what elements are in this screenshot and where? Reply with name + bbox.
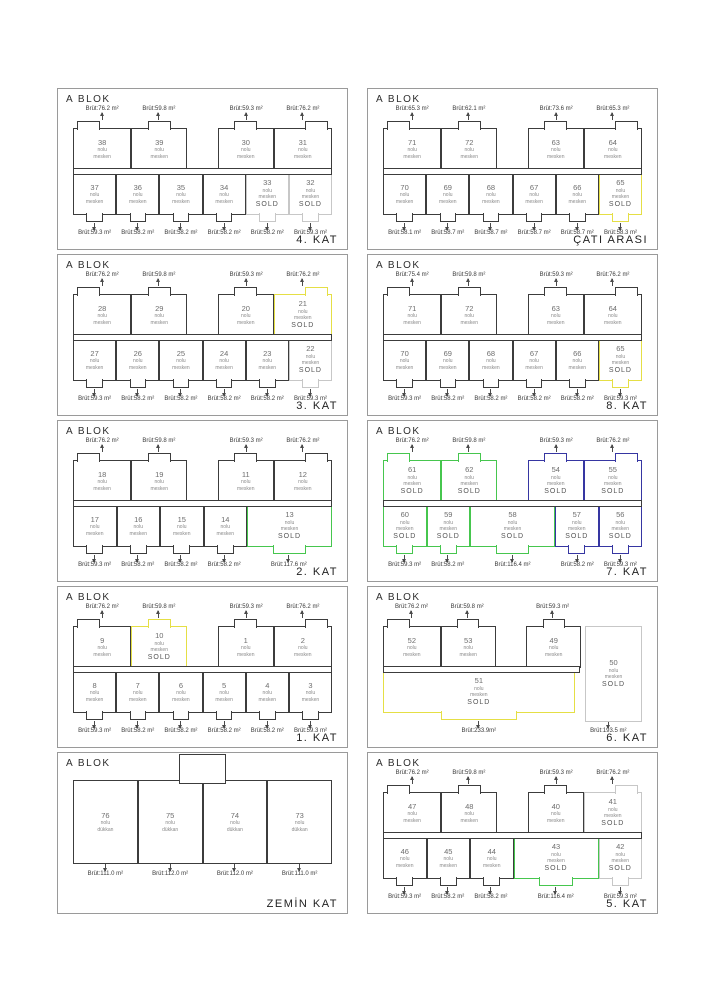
unit-roof-step bbox=[387, 121, 411, 130]
area-label: Brüt:59.8 m² bbox=[131, 604, 187, 618]
sold-badge: SOLD bbox=[609, 367, 632, 376]
area-label-row: Brüt:59.3 m²Brüt:58.2 m²Brüt:58.2 m²Brüt… bbox=[73, 721, 332, 735]
area-label: Brüt:76.2 m² bbox=[274, 438, 332, 452]
area-label: Brüt:59.8 m² bbox=[440, 604, 494, 618]
unit-floor-step bbox=[259, 213, 275, 222]
unit-kind-label: dükkan bbox=[292, 827, 308, 833]
arrow-up-icon bbox=[158, 445, 159, 452]
unit-52: 52nolumesken bbox=[383, 626, 441, 668]
area-value: Brüt:58.2 m² bbox=[164, 230, 197, 237]
sold-badge: SOLD bbox=[609, 201, 632, 210]
area-value: Brüt:59.3 m² bbox=[78, 728, 111, 735]
sold-badge: SOLD bbox=[401, 488, 424, 497]
unit-number: 6 bbox=[179, 681, 183, 690]
unit-kind-label: mesken bbox=[460, 320, 478, 326]
floor-name: 6. KAT bbox=[606, 732, 648, 744]
bottom-units-row: 70nolumesken69nolumesken68nolumesken67no… bbox=[383, 339, 642, 389]
unit-17: 17nolumesken bbox=[73, 505, 117, 547]
unit-roof-step bbox=[387, 287, 411, 296]
arrow-up-icon bbox=[302, 113, 303, 120]
unit-30: 30nolumesken bbox=[218, 128, 274, 170]
unit-roof-step bbox=[77, 121, 101, 130]
unit-number: 49 bbox=[550, 636, 558, 645]
unit-number: 68 bbox=[487, 349, 495, 358]
arrow-down-icon bbox=[447, 555, 448, 562]
unit-floor-step bbox=[216, 379, 232, 388]
arrow-down-icon bbox=[478, 721, 479, 728]
unit-number: 61 bbox=[408, 465, 416, 474]
unit-31: 31nolumesken bbox=[274, 128, 332, 170]
unit-floor-step bbox=[526, 379, 542, 388]
corridor bbox=[73, 666, 332, 673]
area-value: Brüt:58.2 m² bbox=[474, 894, 507, 901]
area-label: Brüt:75.4 m² bbox=[383, 272, 441, 286]
arrow-up-icon bbox=[468, 113, 469, 120]
area-label: Brüt:76.2 m² bbox=[73, 604, 131, 618]
area-value: Brüt:233.9m² bbox=[461, 728, 496, 735]
area-label: Brüt:59.3 m² bbox=[73, 389, 116, 403]
unit-46: 46nolumesken bbox=[383, 837, 427, 879]
arrow-down-icon bbox=[137, 555, 138, 562]
unit-kind-label: mesken bbox=[294, 486, 312, 492]
arrow-up-icon bbox=[612, 113, 613, 120]
unit-number: 20 bbox=[242, 304, 250, 313]
unit-number: 33 bbox=[263, 178, 271, 187]
unit-kind-label: mesken bbox=[86, 531, 104, 537]
area-label: Brüt:59.3 m² bbox=[528, 770, 584, 784]
unit-floor-step bbox=[483, 877, 500, 886]
arrow-down-icon bbox=[137, 389, 138, 396]
unit-16: 16nolumesken bbox=[117, 505, 161, 547]
area-label: Brüt:59.3 m² bbox=[525, 604, 579, 618]
area-value: Brüt:116.4 m² bbox=[538, 894, 574, 901]
unit-roof-step bbox=[387, 619, 410, 628]
unit-kind-label: mesken bbox=[482, 365, 500, 371]
floor-name: 1. KAT bbox=[296, 732, 338, 744]
unit-floor-step bbox=[569, 213, 585, 222]
area-value: Brüt:58.2 m² bbox=[164, 728, 197, 735]
unit-72: 72nolumesken bbox=[441, 294, 497, 336]
unit-roof-step bbox=[234, 619, 257, 628]
unit-floor-step bbox=[396, 877, 413, 886]
bottom-units-row: 70nolumesken69nolumesken68nolumesken67no… bbox=[383, 173, 642, 223]
arrow-down-icon bbox=[94, 223, 95, 230]
unit-26: 26nolumesken bbox=[116, 339, 159, 381]
plan-gap bbox=[187, 128, 218, 170]
unit-floor-step bbox=[396, 213, 412, 222]
panels-grid: A BLOKBrüt:76.2 m²Brüt:59.8 m²Brüt:59.3 … bbox=[57, 88, 658, 914]
arrow-up-icon bbox=[412, 279, 413, 286]
unit-number: 64 bbox=[609, 138, 617, 147]
unit-number: 31 bbox=[299, 138, 307, 147]
unit-kind-label: mesken bbox=[294, 652, 312, 658]
corridor bbox=[73, 500, 332, 507]
unit-65: 65nolumeskenSOLD bbox=[599, 173, 642, 215]
floor-plan: Brüt:76.2 m²Brüt:59.8 m²Brüt:59.3 m²Brüt… bbox=[73, 604, 332, 735]
arrow-up-icon bbox=[556, 777, 557, 784]
unit-floor-step bbox=[526, 213, 542, 222]
area-label: Brüt:58.2 m² bbox=[246, 223, 289, 237]
unit-63: 63nolumesken bbox=[528, 294, 584, 336]
unit-roof-step bbox=[234, 287, 257, 296]
unit-floor-step bbox=[496, 545, 529, 554]
unit-roof-step bbox=[458, 453, 481, 462]
unit-kind-label: mesken bbox=[604, 320, 622, 326]
unit-kind-label: mesken bbox=[129, 531, 147, 537]
sold-badge: SOLD bbox=[565, 533, 588, 542]
unit-number: 15 bbox=[178, 515, 186, 524]
unit-21: 21nolumeskenSOLD bbox=[274, 294, 332, 336]
unit-roof-step bbox=[615, 785, 639, 794]
unit-floor-step bbox=[302, 213, 318, 222]
unit-73: 73noludükkan bbox=[267, 780, 332, 864]
arrow-down-icon bbox=[105, 864, 106, 871]
shops-row: 76noludükkan75noludükkan74noludükkan73no… bbox=[73, 780, 332, 864]
unit-kind-label: mesken bbox=[569, 365, 587, 371]
unit-76: 76noludükkan bbox=[73, 780, 138, 864]
area-label: Brüt:59.3 m² bbox=[383, 555, 426, 569]
arrow-down-icon bbox=[310, 721, 311, 728]
area-label: Brüt:59.8 m² bbox=[131, 272, 187, 286]
area-value: Brüt:58.2 m² bbox=[208, 562, 241, 569]
unit-kind-label: mesken bbox=[86, 199, 104, 205]
area-label: Brüt:59.3 m² bbox=[383, 389, 426, 403]
area-value: Brüt:59.3 m² bbox=[78, 396, 111, 403]
arrow-up-icon bbox=[158, 611, 159, 618]
arrow-down-icon bbox=[447, 223, 448, 230]
corridor bbox=[73, 168, 332, 175]
area-value: Brüt:111.0 m² bbox=[282, 871, 317, 878]
unit-kind-label: mesken bbox=[216, 531, 234, 537]
arrow-down-icon bbox=[224, 555, 225, 562]
unit-kind-label: mesken bbox=[459, 652, 477, 658]
unit-roof-step bbox=[457, 619, 479, 628]
arrow-down-icon bbox=[555, 887, 556, 894]
unit-number: 3 bbox=[308, 681, 312, 690]
unit-kind-label: dükkan bbox=[162, 827, 178, 833]
area-value: Brüt:58.2 m² bbox=[431, 396, 464, 403]
arrow-down-icon bbox=[620, 887, 621, 894]
area-value: Brüt:58.1 m² bbox=[388, 230, 421, 237]
area-value: Brüt:58.2 m² bbox=[208, 728, 241, 735]
floor-plan: Brüt:65.3 m²Brüt:62.1 m²Brüt:73.6 m²Brüt… bbox=[383, 106, 642, 237]
unit-number: 23 bbox=[263, 349, 271, 358]
unit-32: 32nolumeskenSOLD bbox=[289, 173, 332, 215]
floor-name: 2. KAT bbox=[296, 566, 338, 578]
unit-2: 2nolumesken bbox=[274, 626, 332, 668]
top-units-row: 38nolumesken39nolumesken30nolumesken31no… bbox=[73, 120, 332, 170]
area-label: Brüt:58.2 m² bbox=[203, 389, 246, 403]
top-units-row: 28nolumesken29nolumesken20nolumesken21no… bbox=[73, 286, 332, 336]
arrow-up-icon bbox=[158, 113, 159, 120]
area-value: Brüt:59.3 m² bbox=[78, 230, 111, 237]
unit-36: 36nolumesken bbox=[116, 173, 159, 215]
area-label-row: Brüt:59.3 m²Brüt:58.2 m²Brüt:58.2 m²Brüt… bbox=[73, 223, 332, 237]
unit-number: 64 bbox=[609, 304, 617, 313]
unit-22: 22nolumeskenSOLD bbox=[289, 339, 332, 381]
arrow-down-icon bbox=[180, 223, 181, 230]
floor-name: 3. KAT bbox=[296, 400, 338, 412]
arrow-down-icon bbox=[490, 389, 491, 396]
area-label-row: Brüt:59.3 m²Brüt:58.2 m²Brüt:58.2 m²Brüt… bbox=[73, 555, 332, 569]
plan-gap bbox=[497, 128, 528, 170]
unit-roof-step bbox=[77, 287, 101, 296]
unit-roof-step bbox=[234, 453, 257, 462]
bottom-units-row: 60nolumeskenSOLD59nolumeskenSOLD58nolume… bbox=[383, 505, 642, 555]
unit-10: 10nolumeskenSOLD bbox=[131, 626, 187, 668]
floor-panel-2-kat: A BLOKBrüt:76.2 m²Brüt:59.8 m²Brüt:59.3 … bbox=[57, 420, 348, 582]
area-label: Brüt:76.2 m² bbox=[584, 770, 642, 784]
unit-8: 8nolumesken bbox=[73, 671, 116, 713]
corridor bbox=[383, 832, 642, 839]
unit-number: 51 bbox=[475, 676, 483, 685]
unit-number: 24 bbox=[220, 349, 228, 358]
unit-43: 43nolumeskenSOLD bbox=[514, 837, 599, 879]
arrow-up-icon bbox=[612, 279, 613, 286]
unit-roof-step bbox=[148, 121, 171, 130]
area-label: Brüt:76.2 m² bbox=[584, 438, 642, 452]
unit-floor-step bbox=[440, 545, 457, 554]
area-value: Brüt:58.2 m² bbox=[164, 562, 197, 569]
unit-kind-label: mesken bbox=[403, 818, 421, 824]
unit-72: 72nolumesken bbox=[441, 128, 497, 170]
unit-number: 2 bbox=[301, 636, 305, 645]
unit-floor-step bbox=[217, 545, 234, 554]
label-gap bbox=[494, 604, 525, 618]
building-bump bbox=[179, 754, 226, 784]
arrow-up-icon bbox=[246, 611, 247, 618]
unit-number: 5 bbox=[222, 681, 226, 690]
unit-kind-label: mesken bbox=[612, 194, 630, 200]
area-label: Brüt:59.3 m² bbox=[73, 223, 116, 237]
unit-number: 1 bbox=[244, 636, 248, 645]
unit-kind-label: mesken bbox=[604, 481, 622, 487]
unit-kind-label: mesken bbox=[403, 481, 421, 487]
unit-kind-label: mesken bbox=[172, 199, 190, 205]
unit-28: 28nolumesken bbox=[73, 294, 131, 336]
unit-67: 67nolumesken bbox=[513, 173, 556, 215]
unit-9: 9nolumesken bbox=[73, 626, 131, 668]
arrow-down-icon bbox=[620, 223, 621, 230]
unit-66: 66nolumesken bbox=[556, 173, 599, 215]
unit-floor-step bbox=[612, 379, 628, 388]
unit-roof-step bbox=[305, 121, 329, 130]
area-label: Brüt:73.6 m² bbox=[528, 106, 584, 120]
unit-floor-step bbox=[86, 379, 102, 388]
unit-number: 11 bbox=[242, 470, 250, 479]
unit-roof-step bbox=[234, 121, 257, 130]
sold-badge: SOLD bbox=[467, 699, 490, 708]
unit-7: 7nolumesken bbox=[116, 671, 159, 713]
sold-badge: SOLD bbox=[609, 865, 632, 874]
arrow-down-icon bbox=[267, 721, 268, 728]
arrow-up-icon bbox=[246, 113, 247, 120]
unit-floor-step bbox=[568, 545, 585, 554]
unit-floor-step bbox=[259, 711, 275, 720]
unit-floor-step bbox=[130, 213, 146, 222]
floor-panel-1-kat: A BLOKBrüt:76.2 m²Brüt:59.8 m²Brüt:59.3 … bbox=[57, 586, 348, 748]
area-label: Brüt:59.3 m² bbox=[383, 887, 426, 901]
unit-roof-step bbox=[615, 453, 639, 462]
unit-number: 73 bbox=[295, 811, 303, 820]
area-value: Brüt:59.3 m² bbox=[388, 894, 421, 901]
unit-number: 12 bbox=[299, 470, 307, 479]
unit-roof-step bbox=[77, 453, 101, 462]
unit-roof-step bbox=[387, 785, 411, 794]
unit-kind-label: mesken bbox=[403, 320, 421, 326]
sold-badge: SOLD bbox=[393, 533, 416, 542]
unit-69: 69nolumesken bbox=[426, 173, 469, 215]
floor-panel--ati-arasi: A BLOKBrüt:65.3 m²Brüt:62.1 m²Brüt:73.6 … bbox=[367, 88, 658, 250]
unit-kind-label: mesken bbox=[93, 652, 111, 658]
arrow-down-icon bbox=[267, 389, 268, 396]
unit-number: 69 bbox=[444, 183, 452, 192]
unit-kind-label: mesken bbox=[259, 194, 277, 200]
unit-kind-label: mesken bbox=[86, 697, 104, 703]
unit-70: 70nolumesken bbox=[383, 339, 426, 381]
area-label: Brüt:59.8 m² bbox=[441, 438, 497, 452]
unit-number: 44 bbox=[488, 847, 496, 856]
unit-70: 70nolumesken bbox=[383, 173, 426, 215]
area-label: Brüt:76.2 m² bbox=[73, 106, 131, 120]
unit-floor-step bbox=[302, 711, 318, 720]
sold-badge: SOLD bbox=[299, 367, 322, 376]
block-label: A BLOK bbox=[66, 758, 111, 769]
unit-kind-label: dükkan bbox=[97, 827, 113, 833]
arrow-up-icon bbox=[246, 279, 247, 286]
arrow-up-icon bbox=[102, 113, 103, 120]
label-gap bbox=[187, 106, 219, 120]
unit-kind-label: mesken bbox=[545, 652, 563, 658]
unit-floor-step bbox=[130, 711, 146, 720]
floor-plan: 76noludükkan75noludükkan74noludükkan73no… bbox=[73, 780, 332, 878]
arrow-down-icon bbox=[404, 223, 405, 230]
unit-kind-label: mesken bbox=[150, 154, 168, 160]
unit-kind-label: mesken bbox=[302, 360, 320, 366]
floor-plan: Brüt:75.4 m²Brüt:59.8 m²Brüt:59.3 m²Brüt… bbox=[383, 272, 642, 403]
unit-number: 45 bbox=[444, 847, 452, 856]
unit-kind-label: mesken bbox=[482, 199, 500, 205]
arrow-up-icon bbox=[412, 113, 413, 120]
unit-69: 69nolumesken bbox=[426, 339, 469, 381]
unit-kind-label: mesken bbox=[294, 154, 312, 160]
top-units-row: 71nolumesken72nolumesken63nolumesken64no… bbox=[383, 120, 642, 170]
area-label: Brüt:58.2 m² bbox=[159, 721, 202, 735]
unit-kind-label: mesken bbox=[460, 154, 478, 160]
unit-13: 13nolumeskenSOLD bbox=[247, 505, 332, 547]
block-label: A BLOK bbox=[376, 260, 421, 271]
unit-42: 42nolumeskenSOLD bbox=[599, 837, 643, 879]
unit-number: 65 bbox=[616, 344, 624, 353]
unit-number: 55 bbox=[609, 465, 617, 474]
unit-61: 61nolumeskenSOLD bbox=[383, 460, 441, 502]
unit-kind-label: mesken bbox=[525, 199, 543, 205]
unit-number: 16 bbox=[134, 515, 142, 524]
area-label: Brüt:233.9m² bbox=[383, 721, 575, 735]
arrow-up-icon bbox=[468, 777, 469, 784]
arrow-down-icon bbox=[608, 721, 609, 728]
unit-number: 62 bbox=[465, 465, 473, 474]
corridor bbox=[383, 334, 642, 341]
area-label: Brüt:65.3 m² bbox=[383, 106, 441, 120]
top-units-row: 47nolumesken48nolumesken40nolumesken41no… bbox=[383, 784, 642, 834]
arrow-down-icon bbox=[288, 555, 289, 562]
unit-number: 67 bbox=[530, 349, 538, 358]
area-label: Brüt:58.7 m² bbox=[469, 223, 512, 237]
unit-number: 18 bbox=[98, 470, 106, 479]
floor-plan: Brüt:76.2 m²Brüt:59.8 m²Brüt:59.3 m²Brüt… bbox=[383, 438, 642, 569]
label-gap bbox=[187, 438, 219, 452]
area-label-row: Brüt:111.0 m²Brüt:112.0 m²Brüt:112.0 m²B… bbox=[73, 864, 332, 878]
area-label: Brüt:58.2 m² bbox=[159, 223, 202, 237]
unit-number: 29 bbox=[155, 304, 163, 313]
area-value: Brüt:58.2 m² bbox=[164, 396, 197, 403]
block-label: A BLOK bbox=[66, 426, 111, 437]
arrow-down-icon bbox=[447, 389, 448, 396]
unit-number: 4 bbox=[265, 681, 269, 690]
area-label: Brüt:59.8 m² bbox=[131, 106, 187, 120]
floor-plan: Brüt:76.2 m²Brüt:59.8 m²Brüt:59.3 m²52no… bbox=[383, 604, 642, 735]
area-label: Brüt:58.2 m² bbox=[159, 555, 202, 569]
sold-badge: SOLD bbox=[437, 533, 460, 542]
unit-floor-step bbox=[173, 379, 189, 388]
arrow-down-icon bbox=[447, 887, 448, 894]
area-label: Brüt:76.2 m² bbox=[73, 272, 131, 286]
arrow-down-icon bbox=[170, 864, 171, 871]
unit-number: 59 bbox=[444, 510, 452, 519]
unit-number: 7 bbox=[136, 681, 140, 690]
area-label-row: Brüt:233.9m²Brüt:193.5 m² bbox=[383, 721, 642, 735]
floor-plan: Brüt:76.2 m²Brüt:59.8 m²Brüt:59.3 m²Brüt… bbox=[73, 106, 332, 237]
unit-number: 35 bbox=[177, 183, 185, 192]
area-value: Brüt:58.2 m² bbox=[431, 894, 464, 901]
unit-20: 20nolumesken bbox=[218, 294, 274, 336]
unit-kind-label: mesken bbox=[547, 858, 565, 864]
unit-floor-step bbox=[130, 545, 147, 554]
area-label: Brüt:59.3 m² bbox=[218, 272, 274, 286]
area-value: Brüt:116.4 m² bbox=[495, 562, 531, 569]
arrow-down-icon bbox=[404, 389, 405, 396]
unit-number: 72 bbox=[465, 304, 473, 313]
arrow-down-icon bbox=[234, 864, 235, 871]
top-units-row: 18nolumesken19nolumesken11nolumesken12no… bbox=[73, 452, 332, 502]
unit-number: 67 bbox=[530, 183, 538, 192]
unit-48: 48nolumesken bbox=[441, 792, 497, 834]
unit-floor-step bbox=[440, 877, 457, 886]
area-label: Brüt:58.2 m² bbox=[556, 555, 599, 569]
unit-number: 30 bbox=[242, 138, 250, 147]
area-value: Brüt:58.2 m² bbox=[251, 230, 284, 237]
unit-number: 46 bbox=[401, 847, 409, 856]
unit-kind-label: mesken bbox=[439, 526, 457, 532]
area-label-row: Brüt:76.2 m²Brüt:59.8 m²Brüt:59.3 m²Brüt… bbox=[383, 438, 642, 452]
unit-floor-step bbox=[259, 379, 275, 388]
unit-number: 54 bbox=[552, 465, 560, 474]
unit-68: 68nolumesken bbox=[469, 173, 512, 215]
area-label: Brüt:65.3 m² bbox=[584, 106, 642, 120]
arrow-down-icon bbox=[299, 864, 300, 871]
unit-floor-step bbox=[173, 711, 189, 720]
unit-kind-label: mesken bbox=[215, 697, 233, 703]
unit-number: 17 bbox=[91, 515, 99, 524]
sold-badge: SOLD bbox=[299, 201, 322, 210]
unit-kind-label: mesken bbox=[547, 320, 565, 326]
plan-gap bbox=[187, 294, 218, 336]
area-label-row: Brüt:76.2 m²Brüt:59.8 m²Brüt:59.3 m²Brüt… bbox=[73, 106, 332, 120]
floor-plan: Brüt:76.2 m²Brüt:59.8 m²Brüt:59.3 m²Brüt… bbox=[383, 770, 642, 901]
unit-roof-step bbox=[544, 453, 567, 462]
unit-floor-step bbox=[216, 711, 232, 720]
